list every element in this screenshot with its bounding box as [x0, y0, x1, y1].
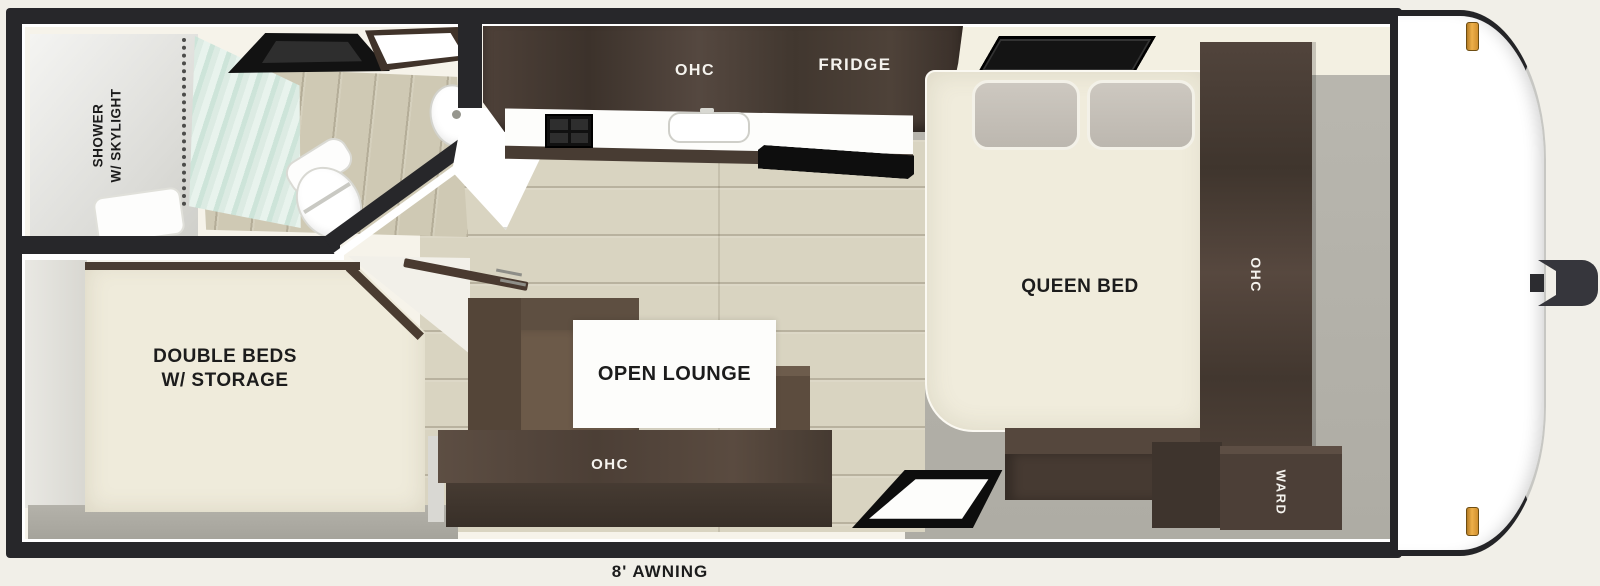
shower-curtain-rod: [182, 38, 192, 206]
pillow-left: [972, 80, 1080, 150]
marker-light-top: [1466, 22, 1479, 51]
rear-bedroom-left-wall: [25, 258, 87, 508]
ottoman: [770, 366, 810, 432]
bathroom-bottom-wall-trim: [22, 254, 344, 260]
rv-floorplan: SHOWERW/ SKYLIGHT OHC FRIDGE DOUBLE BEDS…: [0, 0, 1600, 586]
shower-label-line2: W/ SKYLIGHT: [107, 89, 125, 183]
fridge-label: FRIDGE: [800, 55, 910, 75]
open-lounge-label: OPEN LOUNGE: [598, 363, 751, 386]
double-beds-label: DOUBLE BEDS W/ STORAGE: [95, 345, 355, 393]
lounge-ohc-label: OHC: [560, 456, 660, 473]
shower-label-line1: SHOWER: [89, 89, 107, 183]
bathroom-vent-fan-inner: [262, 41, 362, 63]
kitchen-sink: [668, 112, 750, 143]
bathroom-sink-drain: [452, 110, 461, 119]
wardrobe-side: [1152, 442, 1222, 528]
kitchen-sink-faucet: [700, 108, 714, 113]
shower-label: SHOWERW/ SKYLIGHT: [32, 52, 182, 220]
hitch-coupler: [1538, 260, 1598, 306]
bathroom-kitchen-divider-wall: [458, 8, 482, 108]
cooktop: [545, 114, 593, 148]
bathroom-bottom-wall: [22, 236, 340, 254]
double-beds-label-line1: DOUBLE BEDS: [95, 345, 355, 369]
bedroom-ohc-label: OHC: [1248, 257, 1264, 293]
wardrobe-label: WARD: [1274, 469, 1289, 515]
awning-label: 8' AWNING: [520, 562, 800, 582]
sofa-backrest: [468, 298, 523, 438]
bedroom-skylight-vent: [977, 36, 1156, 74]
double-beds-label-line2: W/ STORAGE: [95, 369, 355, 393]
hitch-mount: [1530, 274, 1544, 292]
double-beds-trim-top: [85, 262, 360, 270]
wardrobe: WARD: [1220, 446, 1342, 530]
marker-light-bottom: [1466, 507, 1479, 536]
kitchen-ohc-label: OHC: [650, 62, 740, 80]
open-lounge-sign: OPEN LOUNGE: [573, 320, 776, 428]
lounge-overhead-cabinet-front: [446, 483, 832, 527]
pillow-right: [1087, 80, 1195, 150]
bedroom-ohc-label-box: OHC: [1200, 190, 1312, 360]
trailer-front-cap: [1390, 10, 1546, 556]
queen-bed-label: QUEEN BED: [1000, 276, 1160, 298]
